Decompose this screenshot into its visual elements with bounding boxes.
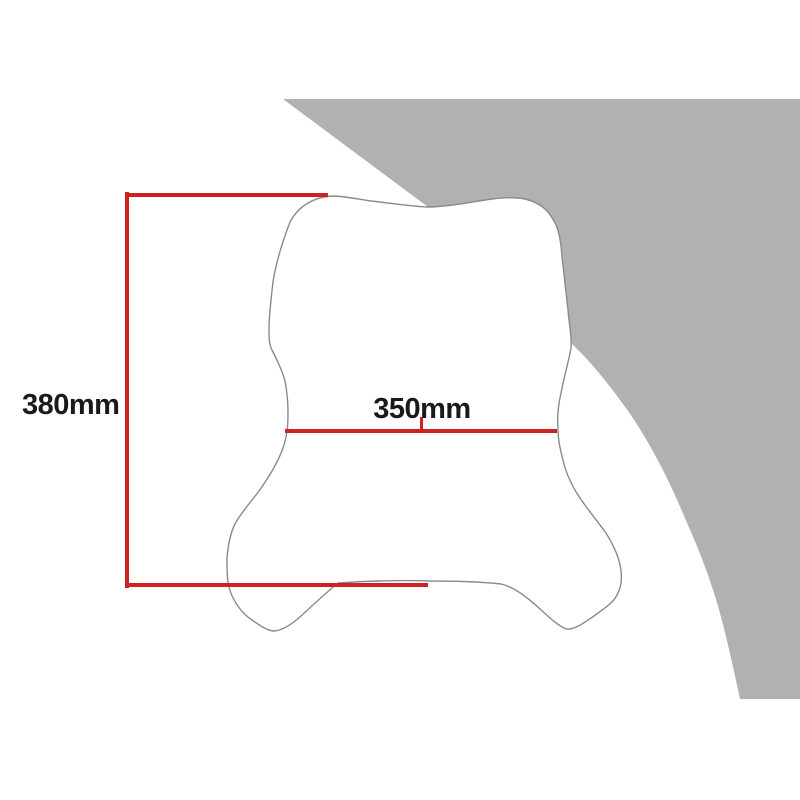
height-dimension-top-tick	[125, 193, 328, 197]
height-label: 380mm	[22, 389, 119, 421]
height-dimension-bottom-tick	[125, 583, 428, 587]
height-dimension-vertical-line	[125, 192, 129, 588]
width-label: 350mm	[373, 393, 470, 425]
dimension-diagram: 380mm 350mm	[0, 0, 800, 800]
